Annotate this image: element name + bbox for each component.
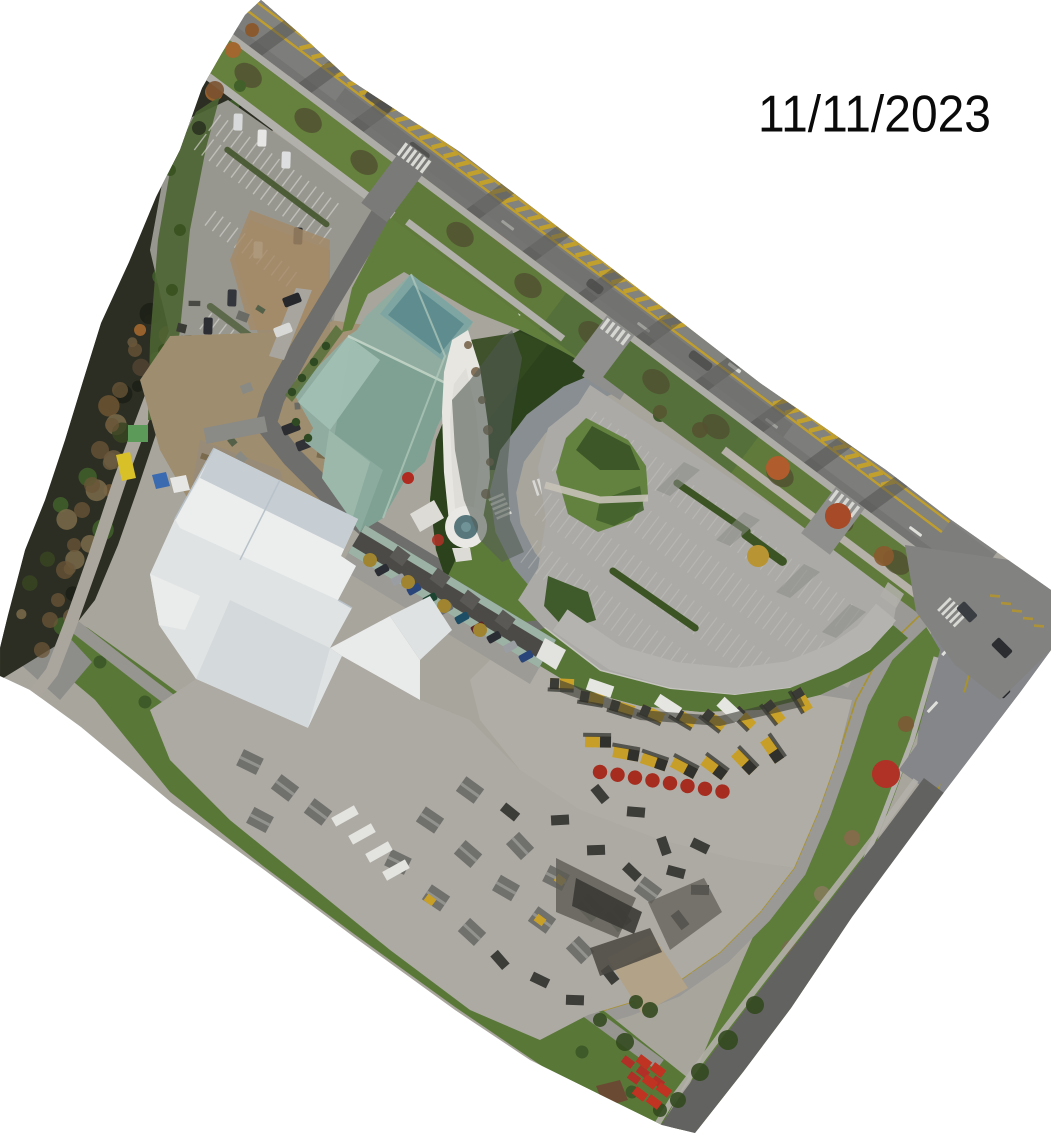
svg-text:11/11/2023: 11/11/2023	[758, 86, 991, 144]
